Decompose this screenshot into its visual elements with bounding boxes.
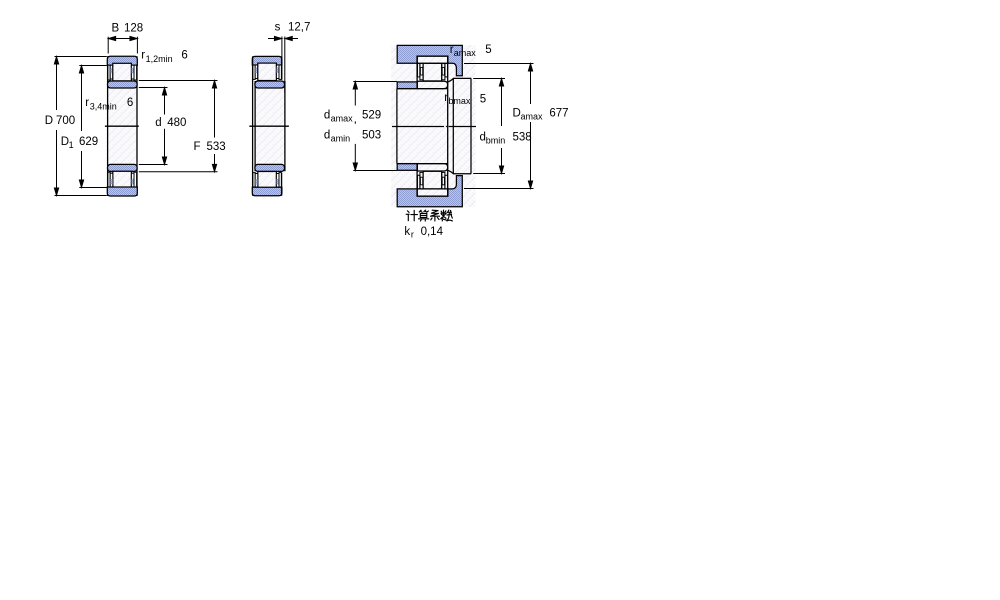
svg-text:1,2min: 1,2min: [146, 54, 173, 64]
svg-text:D: D: [45, 115, 53, 127]
svg-text:1: 1: [69, 140, 74, 150]
svg-text:bmax: bmax: [448, 96, 471, 106]
svg-text:amax: amax: [331, 114, 354, 124]
svg-text:r: r: [411, 230, 414, 240]
svg-text:bmin: bmin: [486, 136, 506, 146]
svg-text:r: r: [141, 49, 145, 61]
svg-text:5: 5: [485, 44, 491, 56]
svg-text:677: 677: [549, 108, 568, 120]
svg-text:B: B: [112, 23, 120, 35]
svg-text:amax: amax: [454, 48, 477, 58]
svg-text:k: k: [404, 226, 410, 238]
svg-text:F: F: [194, 141, 201, 153]
svg-text:629: 629: [79, 136, 98, 148]
svg-text:d: d: [155, 117, 161, 129]
svg-text:6: 6: [127, 97, 133, 109]
svg-text:128: 128: [124, 23, 143, 35]
svg-text:5: 5: [480, 93, 486, 105]
svg-text:533: 533: [207, 141, 226, 153]
svg-text:700: 700: [56, 115, 75, 127]
svg-text:amin: amin: [331, 134, 351, 144]
svg-text:0,14: 0,14: [421, 226, 444, 238]
svg-text:s: s: [275, 22, 281, 34]
svg-text:3,4min: 3,4min: [90, 101, 117, 111]
svg-text:amax: amax: [521, 112, 544, 122]
svg-text:538: 538: [513, 132, 532, 144]
svg-text:d: d: [324, 110, 330, 122]
svg-text:503: 503: [362, 130, 381, 142]
svg-text:480: 480: [167, 117, 186, 129]
svg-text:12,7: 12,7: [288, 22, 310, 34]
svg-text:r: r: [85, 97, 89, 109]
svg-text:529: 529: [362, 110, 381, 122]
svg-text:d: d: [324, 130, 330, 142]
svg-text:6: 6: [181, 50, 187, 62]
